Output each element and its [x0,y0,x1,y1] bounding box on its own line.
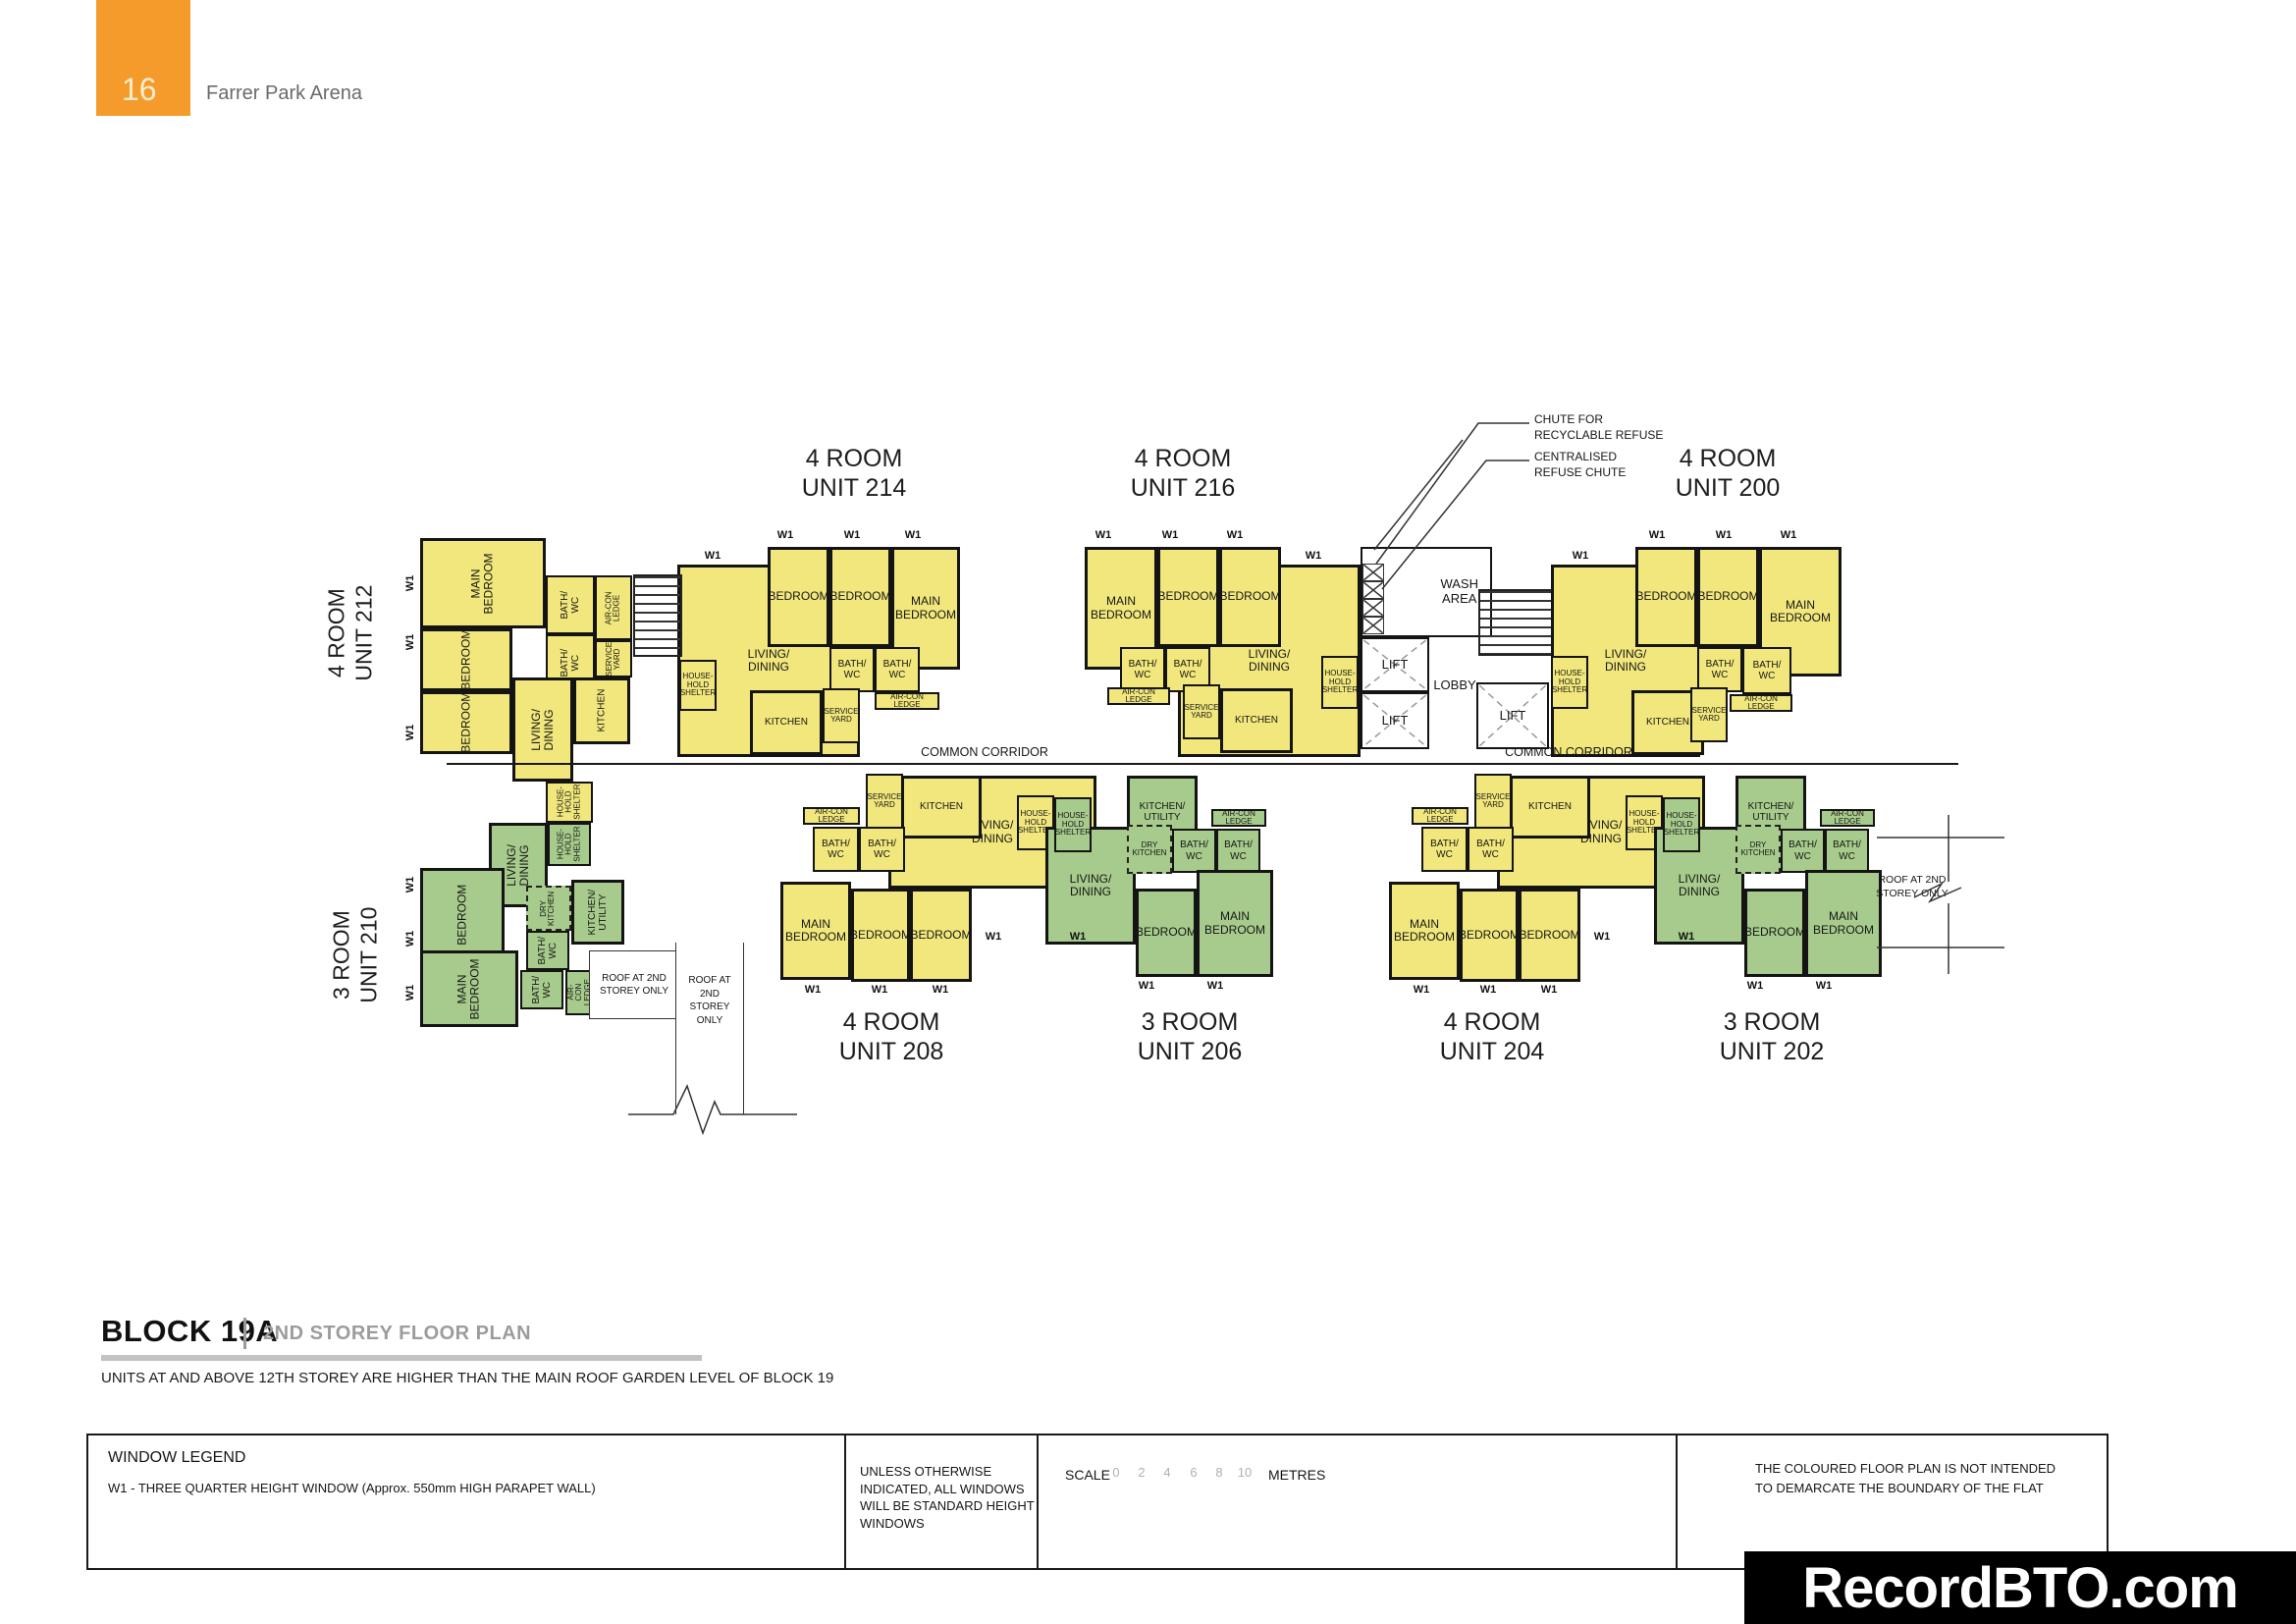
legend-box [86,1434,2109,1570]
common-corridor-label: COMMON CORRIDOR [921,744,1048,760]
window-label-w1: W1 [1716,529,1733,541]
window-label-w1: W1 [1139,980,1155,992]
window-label-w1: W1 [1573,550,1589,562]
unit-label-212: 4 ROOMUNIT 212 [292,574,409,692]
room-bath-wc: BATH/ WC [1742,647,1791,694]
staircase [1478,589,1555,656]
room-dry-kitchen: DRY KITCHEN [526,886,571,931]
room-kitchen: KITCHEN [750,690,823,755]
legend-divider [1676,1434,1678,1570]
room-bath-wc: BATH/ WC [1172,829,1216,873]
window-legend-item: W1 - THREE QUARTER HEIGHT WINDOW (Approx… [108,1481,596,1495]
room-main-bedroom: MAIN BEDROOM [780,882,851,980]
window-label-w1: W1 [905,529,922,541]
room-service-yard: SERVICE YARD [1474,774,1512,829]
scale-tick: 10 [1238,1465,1252,1480]
legend-divider [844,1434,846,1570]
window-label-w1: W1 [1594,931,1611,943]
room-household-shelter: HOUSE- HOLD SHELTER [1321,656,1359,709]
windows-note: UNLESS OTHERWISE INDICATED, ALL WINDOWS … [860,1463,1035,1532]
room-bedroom: BEDROOM [851,889,910,982]
room-kitchen: KITCHEN [1510,776,1590,839]
window-label-w1: W1 [1781,529,1797,541]
room-household-shelter: HOUSE- HOLD SHELTER [679,660,717,711]
lobby-label: LOBBY [1433,677,1475,694]
room-service-yard: SERVICE YARD [866,774,903,829]
window-legend-title: WINDOW LEGEND [108,1449,245,1467]
room-bath-wc: BATH/ WC [859,827,905,872]
room-aircon-ledge: AIR-CON LEDGE [1730,694,1792,712]
refuse-chute-icon [1362,617,1384,634]
lift: LIFT [1476,682,1549,749]
window-label-w1: W1 [933,984,949,996]
room-bedroom: BEDROOM [420,628,512,691]
project-name: Farrer Park Arena [206,82,362,105]
room-main-bedroom: MAIN BEDROOM [1389,882,1460,980]
common-corridor-label: COMMON CORRIDOR [1505,744,1632,760]
room-household-shelter: HOUSE- HOLD SHELTER [546,782,593,823]
room-kitchen: KITCHEN [901,776,982,839]
window-label-w1: W1 [404,877,416,893]
window-label-w1: W1 [1070,931,1087,943]
room-living-dining: LIVING/ DINING [512,677,573,782]
watermark-text: RecordBTO.com [1802,1555,2238,1621]
window-label-w1: W1 [1747,980,1764,992]
window-label-w1: W1 [1162,529,1179,541]
room-household-shelter: HOUSE- HOLD SHELTER [548,823,591,866]
window-label-w1: W1 [705,550,721,562]
room-bedroom: BEDROOM [1157,547,1219,647]
room-household-shelter: HOUSE- HOLD SHELTER [1663,797,1700,852]
room-bedroom: BEDROOM [1744,889,1805,977]
plan-subtitle: 2ND STOREY FLOOR PLAN [263,1323,531,1345]
legend-divider [1037,1434,1039,1570]
scale-unit: METRES [1268,1467,1325,1483]
window-label-w1: W1 [1095,529,1112,541]
room-service-yard: SERVICE YARD [1183,684,1220,739]
chute-centralised-label: CENTRALISED REFUSE CHUTE [1534,450,1626,480]
room-bedroom: BEDROOM [1136,889,1197,977]
room-bedroom: BEDROOM [910,889,972,982]
page-number-tag: 16 [96,0,190,116]
window-label-w1: W1 [1480,984,1497,996]
room-bath-wc: BATH/ WC [1825,829,1869,873]
room-main-bedroom: MAIN BEDROOM [420,950,518,1027]
title-divider [243,1318,246,1349]
window-label-w1: W1 [844,529,861,541]
room-bath-wc: BATH/ WC [829,647,875,692]
unit-label-208: 4 ROOMUNIT 208 [839,1007,944,1066]
scale-tick: 4 [1163,1465,1170,1480]
unit-label-216: 4 ROOMUNIT 216 [1131,444,1236,503]
room-aircon-ledge: AIR-CON LEDGE [1412,807,1468,825]
room-bath-wc: BATH/ WC [1781,829,1825,873]
chute-recyclable-label: CHUTE FOR RECYCLABLE REFUSE [1534,412,1663,443]
room-bedroom: BEDROOM [1460,889,1519,982]
room-aircon-ledge: AIR-CON LEDGE [1107,687,1170,705]
room-bedroom: BEDROOM [420,868,505,962]
window-label-w1: W1 [1649,529,1666,541]
room-bath-wc: BATH/ WC [1421,827,1468,872]
refuse-chute-icon [1362,581,1384,599]
room-bath-wc: BATH/ WC [1216,829,1260,873]
room-dry-kitchen: DRY KITCHEN [1735,825,1781,874]
room-kitchen: KITCHEN [573,677,630,744]
room-household-shelter: HOUSE- HOLD SHELTER [1054,797,1092,852]
unit-label-204: 4 ROOMUNIT 204 [1440,1007,1545,1066]
room-bedroom: BEDROOM [1519,889,1580,982]
room-aircon-ledge: AIR-CON LEDGE [1211,809,1266,827]
room-bath-wc: BATH/ WC [520,970,563,1009]
unit-label-206: 3 ROOMUNIT 206 [1138,1007,1243,1066]
roof-note-right: ROOF AT 2ND STOREY ONLY [1865,874,1959,900]
lift: LIFT [1361,692,1429,749]
unit-label-210: 3 ROOMUNIT 210 [296,896,414,1014]
page-number: 16 [122,72,157,108]
window-label-w1: W1 [1816,980,1833,992]
scale-tick: 6 [1190,1465,1197,1480]
room-aircon-ledge: AIR-CON LEDGE [875,692,939,710]
title-underline [101,1355,702,1361]
refuse-chute-icon [1362,564,1384,581]
window-label-w1: W1 [1306,550,1322,562]
window-label-w1: W1 [404,725,416,741]
room-aircon-ledge: AIR-CON LEDGE [595,575,632,640]
window-label-w1: W1 [404,985,416,1001]
lift: LIFT [1361,637,1429,692]
room-aircon-ledge: AIR-CON LEDGE [1820,809,1875,827]
scale-tick: 8 [1215,1465,1222,1480]
room-service-yard: SERVICE YARD [823,688,860,743]
window-label-w1: W1 [1207,980,1224,992]
room-bath-wc: BATH/ WC [1697,647,1742,692]
window-label-w1: W1 [1227,529,1244,541]
floor-plan-page: { "page": { "number": "16", "project": "… [0,0,2296,1624]
unit-label-200: 4 ROOMUNIT 200 [1676,444,1781,503]
scale-tick: 2 [1138,1465,1145,1480]
refuse-chute-icon [1362,599,1384,617]
scale-label: SCALE [1065,1467,1110,1483]
room-bedroom: BEDROOM [1697,547,1759,647]
room-service-yard: SERVICE YARD [1690,687,1728,742]
room-bath-wc: BATH/ WC [526,931,569,970]
unit-label-202: 3 ROOMUNIT 202 [1720,1007,1825,1066]
storey-note: UNITS AT AND ABOVE 12TH STOREY ARE HIGHE… [101,1370,833,1386]
room-bath-wc: BATH/ WC [875,647,920,692]
watermark-banner: RecordBTO.com [1744,1551,2296,1624]
room-bath-wc: BATH/ WC [1120,647,1165,692]
room-main-bedroom: MAIN BEDROOM [420,538,546,628]
room-aircon-ledge: AIR-CON LEDGE [803,807,860,825]
block-title: BLOCK 19A [101,1314,278,1349]
roof-note-strip: ROOF AT 2ND STOREY ONLY [675,943,744,1114]
room-bedroom: BEDROOM [768,547,829,647]
room-bedroom: BEDROOM [420,691,512,754]
window-label-w1: W1 [1541,984,1558,996]
room-bath-wc: BATH/ WC [813,827,859,872]
window-label-w1: W1 [404,931,416,947]
window-label-w1: W1 [404,575,416,592]
staircase [633,574,682,657]
window-label-w1: W1 [777,529,794,541]
window-label-w1: W1 [986,931,1002,943]
room-household-shelter: HOUSE- HOLD SHELTER [1551,656,1588,709]
window-label-w1: W1 [1414,984,1430,996]
window-label-w1: W1 [1679,931,1695,943]
unit-label-214: 4 ROOMUNIT 214 [802,444,907,503]
room-bedroom: BEDROOM [1219,547,1281,647]
room-bedroom: BEDROOM [1635,547,1697,647]
room-service-yard: SERVICE YARD [595,640,632,677]
window-label-w1: W1 [805,984,822,996]
room-bath-wc: BATH/ WC [546,575,595,634]
room-kitchen: KITCHEN [1220,688,1293,753]
room-bath-wc: BATH/ WC [1468,827,1514,872]
window-label-w1: W1 [404,634,416,651]
roof-note-box: ROOF AT 2ND STOREY ONLY [589,950,679,1019]
window-label-w1: W1 [872,984,888,996]
room-bedroom: BEDROOM [829,547,891,647]
room-kitchen-utility: KITCHEN/ UTILITY [571,880,624,945]
scale-tick: 0 [1112,1465,1119,1480]
boundary-note: THE COLOURED FLOOR PLAN IS NOT INTENDED … [1755,1459,2056,1497]
room-main-bedroom: MAIN BEDROOM [1197,870,1273,977]
room-dry-kitchen: DRY KITCHEN [1127,825,1172,874]
